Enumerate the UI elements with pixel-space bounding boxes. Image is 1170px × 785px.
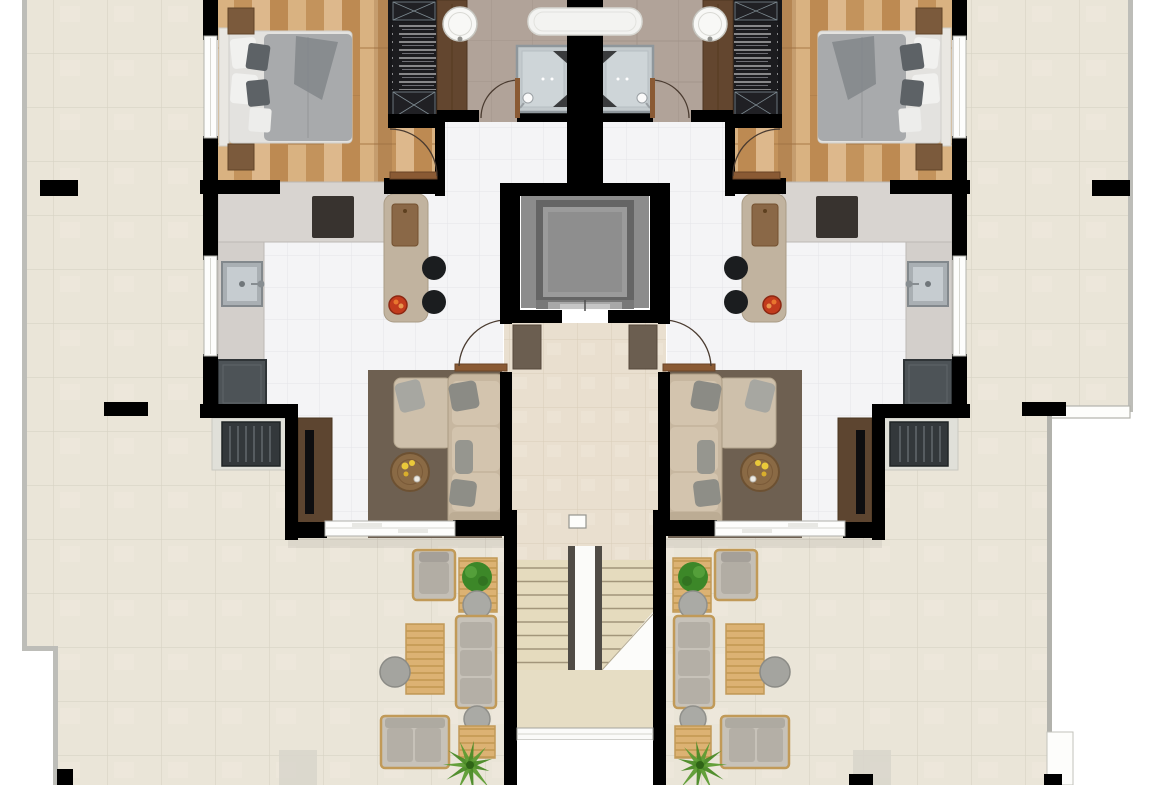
bar-stool — [422, 256, 446, 280]
shower-head — [523, 93, 533, 103]
fruit — [394, 300, 399, 305]
patio-sofa-cushion — [387, 728, 413, 762]
building-shadow — [666, 538, 882, 548]
door-entry-leaf — [663, 364, 715, 371]
coffee-table — [391, 453, 429, 491]
coffee-table — [741, 453, 779, 491]
patio-sofa-cushion — [460, 678, 492, 704]
wall-living-west — [285, 404, 298, 540]
washbasin-tap — [708, 37, 713, 42]
wall-bedroom-south — [200, 180, 280, 194]
patio-ottoman — [380, 657, 410, 687]
sliding-door-panel — [398, 529, 428, 533]
shower-jet — [542, 78, 545, 81]
terrace-patch-left — [279, 750, 317, 785]
patio-armchair-cushion — [721, 562, 751, 594]
bed-pillow — [898, 107, 922, 132]
wall-corridor-south — [658, 372, 670, 530]
cooktop — [816, 196, 858, 238]
sink-drain — [239, 281, 245, 287]
bar-stool — [724, 290, 748, 314]
patio-sofa-back — [725, 718, 785, 728]
patio-coffee-table — [726, 624, 764, 694]
door-entry-leaf — [455, 364, 507, 371]
wall-stub-terrace — [57, 769, 73, 785]
bar-stool — [422, 290, 446, 314]
stair-void — [517, 740, 653, 785]
terrace-edge-left — [22, 0, 27, 650]
sink-tap — [258, 281, 265, 288]
cooktop — [312, 196, 354, 238]
washbasin-tap — [458, 37, 463, 42]
patio-sofa-cushion — [460, 650, 492, 676]
stairwell-wall-left — [504, 510, 517, 785]
tv-screen — [305, 430, 314, 514]
elevator-wall-top — [500, 183, 670, 196]
table-flowers — [409, 460, 415, 466]
table-flowers — [762, 472, 767, 477]
wall-exterior-mid — [952, 136, 967, 260]
patio-sofa-cushion — [678, 678, 710, 704]
patio-sofa-cushion — [729, 728, 755, 762]
tv-cabinet — [298, 418, 332, 524]
wall-hall-west — [435, 118, 445, 196]
patio-sofa-cushion — [757, 728, 783, 762]
elevator-wall-bottom-right — [608, 310, 670, 323]
table-cup — [750, 476, 756, 482]
patio-sofa-cushion — [415, 728, 441, 762]
table-flowers — [404, 472, 409, 477]
sink-drain — [925, 281, 931, 287]
wall-bedroom-south — [890, 180, 970, 194]
terrace-right-upper — [963, 0, 1130, 415]
terrace-edge-left-jog — [22, 646, 58, 651]
terrace-right-lower-strip — [963, 415, 1047, 533]
patio-armchair-back — [721, 552, 751, 562]
patio-sofa-cushion — [678, 650, 710, 676]
wardrobe-hanging-clothes — [392, 22, 436, 90]
patio-sofa-back — [385, 718, 445, 728]
elevator-cab-core — [548, 212, 622, 292]
fruit-bowl — [389, 296, 407, 314]
bar-stool — [724, 256, 748, 280]
patio-sofa-cushion — [460, 622, 492, 648]
fruit — [772, 300, 777, 305]
wall-bath-south-a — [691, 110, 733, 122]
patio-coffee-table — [406, 624, 444, 694]
sofa-pillow — [455, 440, 473, 474]
table-cup — [414, 476, 420, 482]
potted-plant-shade — [478, 576, 488, 586]
fruit-bowl — [763, 296, 781, 314]
bed-pillow-dark — [246, 79, 271, 107]
wardrobe-hanging-clothes — [734, 22, 778, 90]
wall-living-south-a — [285, 522, 327, 538]
bed-headboard — [941, 28, 951, 146]
wall-living-south-b — [453, 520, 504, 536]
terrace-edge-right-lower — [1047, 415, 1052, 785]
patio-ottoman — [760, 657, 790, 687]
patio-sofa-cushion — [678, 622, 710, 648]
floor-plan-drawing: Residential floor plan with two mirrored… — [0, 0, 1170, 785]
bed-pillow-dark — [899, 43, 924, 72]
wall-bedroom-exterior — [952, 0, 967, 40]
nightstand — [228, 144, 254, 170]
sofa-pillow — [693, 479, 722, 508]
stair-rail-bar — [568, 546, 575, 670]
terrace-edge-left-lower — [53, 648, 58, 785]
wall-stub-terrace — [1044, 774, 1062, 785]
table-flowers — [762, 463, 769, 470]
potted-plant-shade — [682, 576, 692, 586]
bed-pillow-dark — [900, 79, 925, 107]
potted-plant-highlight — [693, 566, 705, 578]
stair-landing-lower — [517, 670, 653, 728]
wall-exterior-mid — [203, 136, 218, 260]
sliding-door-panel — [788, 523, 818, 527]
wall-kitchen-south — [872, 404, 970, 418]
wall-stub-terrace — [1022, 402, 1066, 416]
sofa-pillow — [697, 440, 715, 474]
stair-newel-post — [569, 515, 586, 528]
sofa-pillow — [448, 380, 480, 412]
sofa-pillow — [690, 380, 722, 412]
elevator-wall-left — [500, 183, 520, 323]
entry-doormat — [513, 325, 541, 369]
wall-living-south-b — [666, 520, 717, 536]
stair-flight-left — [517, 560, 568, 670]
building-shadow — [288, 538, 504, 548]
shower-jet — [626, 78, 629, 81]
potted-plant — [462, 562, 492, 592]
bed-pillow — [248, 107, 272, 132]
tv-screen — [856, 430, 865, 514]
door-bathroom-leaf — [515, 78, 520, 118]
wall-living-west — [872, 404, 885, 540]
potted-plant-highlight — [465, 566, 477, 578]
wall-living-south-a — [843, 522, 885, 538]
shower-jet — [617, 78, 620, 81]
fruit — [767, 304, 772, 309]
wall-stub-terrace — [40, 180, 78, 196]
wall-corridor-south — [500, 372, 512, 530]
table-flowers — [402, 463, 409, 470]
sliding-door-panel — [352, 523, 382, 527]
shower-head — [637, 93, 647, 103]
sofa-pillow — [449, 479, 478, 508]
wall-stub-terrace — [849, 774, 873, 785]
nightstand — [916, 8, 942, 34]
elevator-wall-right — [650, 183, 670, 323]
nightstand — [916, 144, 942, 170]
wall-hall-west — [725, 118, 735, 196]
door-bathroom-leaf — [650, 78, 655, 118]
fridge — [904, 360, 952, 408]
door-bedroom-leaf — [390, 172, 437, 179]
potted-plant — [678, 562, 708, 592]
wall-bedroom-exterior — [203, 0, 218, 40]
table-flowers — [755, 460, 761, 466]
stairwell-wall-right — [653, 510, 666, 785]
tv-cabinet — [838, 418, 872, 524]
wall-stub-terrace — [104, 402, 148, 416]
sink-tap — [906, 281, 913, 288]
entry-doormat — [629, 325, 657, 369]
fridge — [218, 360, 266, 408]
bed-headboard — [219, 28, 229, 146]
wall-stub-terrace — [1092, 180, 1130, 196]
cutting-board-hole — [403, 209, 407, 213]
floor-plan-stage: Residential floor plan with two mirrored… — [0, 0, 1170, 785]
stair-rail-bar — [595, 546, 602, 670]
terrace-edge-right — [1128, 0, 1133, 412]
bed-pillow-dark — [245, 43, 270, 72]
door-bedroom-leaf — [733, 172, 780, 179]
fruit — [399, 304, 404, 309]
wall-bath-south-a — [437, 110, 479, 122]
patio-armchair-back — [419, 552, 449, 562]
shower-jet — [551, 78, 554, 81]
patio-armchair-cushion — [419, 562, 449, 594]
nightstand — [228, 8, 254, 34]
cutting-board-hole — [763, 209, 767, 213]
wall-kitchen-south — [200, 404, 298, 418]
elevator-wall-bottom-left — [500, 310, 562, 323]
sliding-door-panel — [742, 529, 772, 533]
